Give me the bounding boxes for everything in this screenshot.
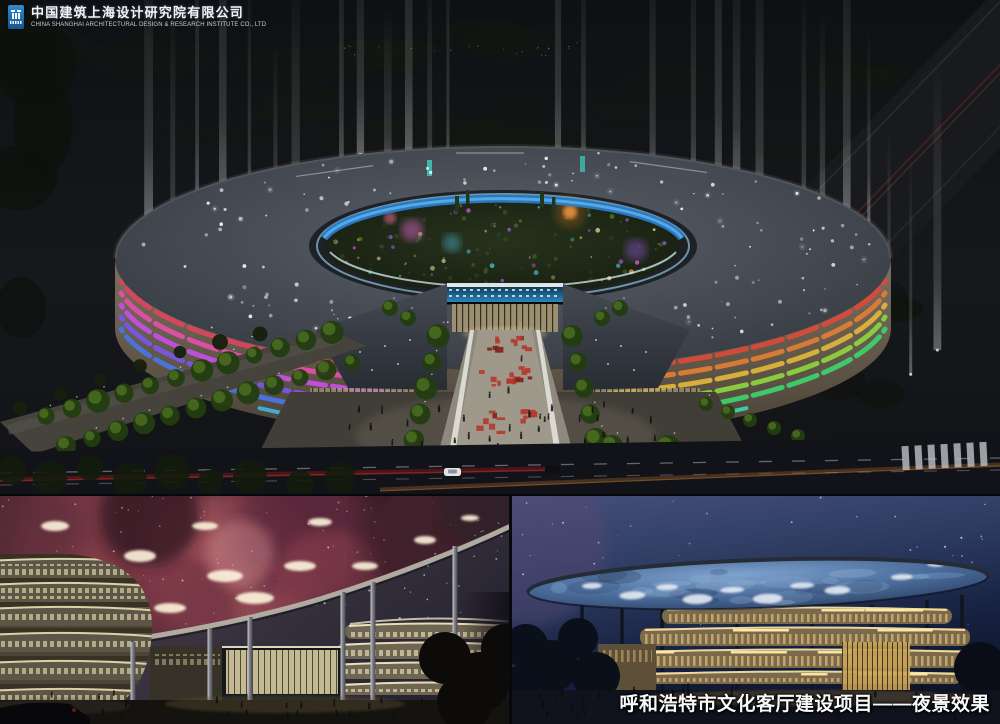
company-name-en: CHINA SHANGHAI ARCHITECTURAL DESIGN & RE… (31, 22, 266, 28)
brand-header: 中国建筑上海设计研究院有限公司 CHINA SHANGHAI ARCHITECT… (8, 5, 266, 29)
presentation-board: 中国建筑上海设计研究院有限公司 CHINA SHANGHAI ARCHITECT… (0, 0, 1000, 724)
logo-gate-glyph (11, 10, 21, 19)
detail-rendering-night: 呼和浩特市文化客厅建设项目——夜景效果 (512, 496, 1000, 724)
project-caption: 呼和浩特市文化客厅建设项目——夜景效果 (619, 689, 990, 716)
bridge-roof-edge (447, 283, 563, 287)
company-logo-icon (8, 5, 24, 29)
logo-letters-glyph (10, 21, 22, 24)
main-aerial-rendering: 中国建筑上海设计研究院有限公司 CHINA SHANGHAI ARCHITECT… (0, 0, 1000, 494)
company-name-zh: 中国建筑上海设计研究院有限公司 (31, 5, 266, 20)
curved-floor-bands (628, 608, 978, 685)
aerial-rendering-art (0, 0, 1000, 494)
brand-text: 中国建筑上海设计研究院有限公司 CHINA SHANGHAI ARCHITECT… (31, 5, 266, 28)
dusk-rendering-art (0, 496, 509, 724)
detail-rendering-dusk (0, 496, 509, 724)
